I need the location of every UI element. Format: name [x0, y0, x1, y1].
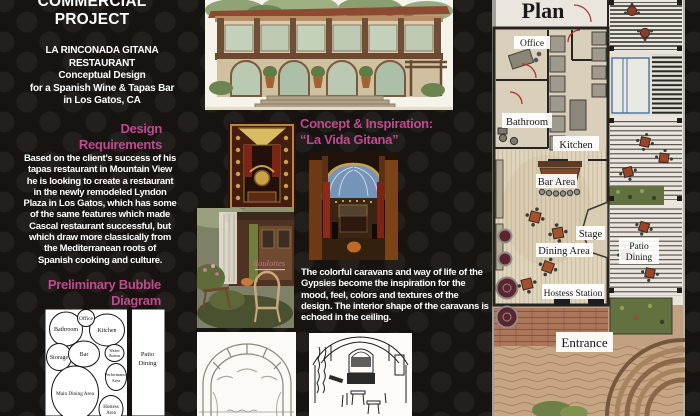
interior-sketch-drawing — [309, 333, 412, 416]
svg-text:Station: Station — [109, 353, 120, 358]
svg-text:Storage: Storage — [50, 355, 69, 361]
svg-text:Performance: Performance — [105, 372, 128, 377]
floor-plan-drawing: Plan — [492, 0, 685, 416]
building-rendering-image — [205, 0, 453, 110]
svg-text:Stage: Stage — [579, 229, 603, 240]
svg-text:Kitchen: Kitchen — [98, 328, 117, 334]
bubble-diagram-heading: Preliminary Bubble Diagram — [0, 277, 161, 308]
project-title-line: RESTAURANT — [12, 58, 192, 71]
svg-text:Patio: Patio — [141, 351, 154, 358]
svg-text:Area: Area — [106, 411, 116, 416]
project-title: LA RINCONADA GITANA RESTAURANT Conceptua… — [12, 45, 192, 108]
roulottes-caravan-image: Roulottes — [197, 208, 294, 328]
svg-text:Entrance: Entrance — [561, 335, 607, 350]
roulottes-caption: Roulottes — [252, 258, 286, 268]
concept-heading: Concept & Inspiration: “La Vida Gitana” — [300, 116, 490, 147]
concept-body: The colorful caravans and way of life of… — [301, 267, 496, 323]
left-drape — [323, 182, 330, 242]
svg-text:Bathroom: Bathroom — [54, 327, 78, 333]
svg-text:Dining: Dining — [626, 253, 653, 263]
svg-text:Bar Area: Bar Area — [538, 177, 576, 188]
svg-text:Office: Office — [79, 315, 94, 322]
design-requirements-heading: Design Requirements — [0, 121, 162, 152]
board-header: COMMERCIAL PROJECT — [2, 0, 182, 29]
project-title-line: Conceptual Design — [12, 70, 192, 83]
steps — [255, 96, 395, 108]
bar-canopy — [538, 161, 582, 167]
floor-band — [215, 53, 443, 60]
svg-text:Patio: Patio — [629, 242, 649, 252]
project-title-line: LA RINCONADA GITANA — [12, 45, 192, 58]
floor-plan-panel: Plan — [492, 0, 685, 416]
arch-sketch-image — [197, 332, 296, 416]
ramp — [612, 58, 649, 113]
project-title-line: in Los Gatos, CA — [12, 95, 192, 108]
right-drape — [377, 182, 384, 242]
svg-text:Main Dining Area: Main Dining Area — [56, 391, 94, 397]
project-title-line: for a Spanish Wine & Tapas Bar — [12, 83, 192, 96]
gilded-caravan-drawing — [228, 122, 296, 211]
gilded-caravan-image — [228, 122, 296, 211]
svg-text:Hostess Station: Hostess Station — [544, 289, 603, 299]
svg-text:Area: Area — [112, 378, 121, 383]
building-rendering-drawing — [205, 0, 453, 110]
medallion — [255, 171, 270, 186]
counter — [340, 216, 367, 232]
bubble-diagram: Bathroom Office Kitchen Storage Bar Wait… — [45, 309, 165, 416]
svg-text:Kitchen: Kitchen — [559, 140, 593, 151]
plan-title: Plan — [522, 0, 565, 23]
orange-pot — [347, 242, 361, 253]
presentation-board: { "colors": { "accent_magenta": "#c0498f… — [0, 0, 700, 416]
svg-text:Dining: Dining — [138, 360, 157, 367]
design-requirements-body: Based on the client’s success of his tap… — [10, 153, 190, 266]
interior-sketch-image — [309, 333, 412, 416]
caravan-interior-drawing — [309, 152, 398, 260]
stairs — [652, 54, 682, 114]
entry-planter — [610, 298, 672, 334]
bubble-diagram-drawing: Bathroom Office Kitchen Storage Bar Wait… — [45, 309, 165, 416]
banquette — [496, 160, 503, 218]
roulottes-caravan-drawing: Roulottes — [197, 208, 294, 328]
arch-sketch-drawing — [197, 332, 296, 416]
svg-text:Dining Area: Dining Area — [538, 246, 590, 257]
svg-text:Bathroom: Bathroom — [506, 117, 548, 128]
green-trellis-band — [608, 186, 664, 205]
svg-text:Bar: Bar — [80, 352, 89, 358]
svg-text:Hostess: Hostess — [103, 405, 119, 410]
pergola-trellis — [610, 2, 682, 50]
caravan-interior-image — [309, 152, 398, 260]
svg-text:Office: Office — [520, 38, 544, 49]
